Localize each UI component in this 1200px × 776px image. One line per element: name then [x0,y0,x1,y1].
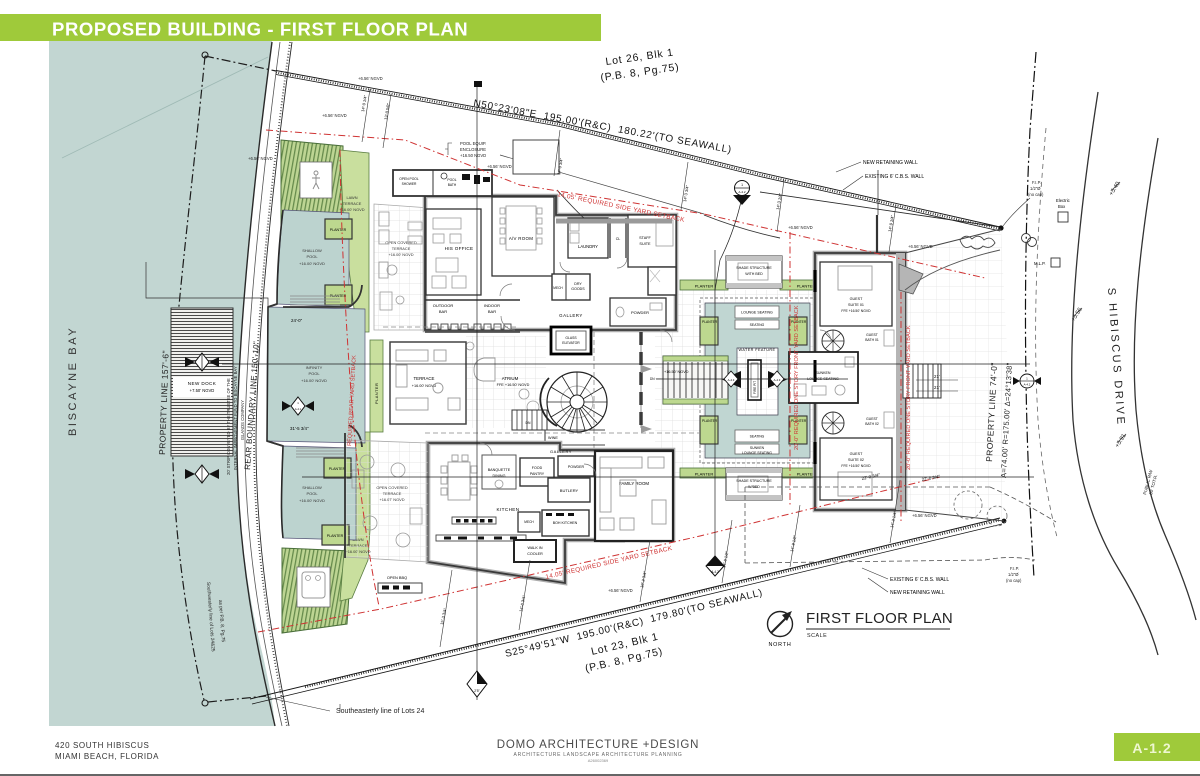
svg-text:+16.00' NGVD: +16.00' NGVD [299,498,325,503]
svg-text:+6.56' NGVD: +6.56' NGVD [608,588,633,593]
svg-text:PANTRY: PANTRY [530,472,545,476]
svg-text:LAWN: LAWN [346,195,357,200]
svg-text:+6.56' NGVD: +6.56' NGVD [912,513,937,518]
svg-text:BANQUETTE: BANQUETTE [488,468,511,472]
svg-text:POWDER: POWDER [631,310,649,315]
svg-text:420 SOUTH HIBISCUS: 420 SOUTH HIBISCUS [55,741,149,750]
svg-text:A-4.1: A-4.1 [295,407,302,411]
svg-text:BATH 02: BATH 02 [865,422,879,426]
svg-text:LOUNGE SEATING: LOUNGE SEATING [741,311,773,315]
svg-text:PLANTER: PLANTER [327,534,344,538]
svg-text:31'-5 3/4": 31'-5 3/4" [290,426,309,431]
svg-text:ELEVATOR: ELEVATOR [562,341,580,345]
svg-text:GUEST: GUEST [850,297,863,301]
svg-text:FFE +16.50' NGVD: FFE +16.50' NGVD [497,383,530,387]
svg-text:HIS OFFICE: HIS OFFICE [445,246,474,251]
svg-text:POWDER: POWDER [568,465,585,469]
svg-text:POOL: POOL [306,491,318,496]
svg-text:WALK IN: WALK IN [527,546,542,550]
svg-text:+6.56' NGVD: +6.56' NGVD [788,225,813,230]
svg-text:FIRST FLOOR PLAN: FIRST FLOOR PLAN [806,610,953,627]
svg-text:CL: CL [616,237,621,241]
svg-text:+16.00' NGVD: +16.00' NGVD [388,252,413,257]
svg-text:ATRIUM: ATRIUM [502,376,519,381]
svg-text:SUNKEN: SUNKEN [816,371,831,375]
svg-text:GALLERY: GALLERY [559,313,583,318]
svg-text:EXISTING 6' C.B.S. WALL: EXISTING 6' C.B.S. WALL [865,174,924,180]
svg-text:POOL: POOL [447,178,456,182]
svg-text:PLANTER: PLANTER [695,284,714,289]
svg-text:WATER FEATURE: WATER FEATURE [739,348,776,352]
svg-text:ISLANDS COMPANY: ISLANDS COMPANY [240,400,245,440]
svg-text:NEW RETAINING WALL: NEW RETAINING WALL [890,590,945,596]
svg-text:2'5": 2'5" [474,689,480,693]
svg-text:SHADE STRUCTURE: SHADE STRUCTURE [736,266,772,270]
svg-text:POOL: POOL [306,254,318,259]
svg-text:A-1.2: A-1.2 [1132,740,1171,756]
svg-text:MECH: MECH [553,286,563,290]
svg-text:FFE +16.50' NGVD: FFE +16.50' NGVD [841,309,871,313]
svg-text:20' STRIP CONVEYED BY THE TRUS: 20' STRIP CONVEYED BY THE TRUSTEE OF THE [226,378,231,475]
svg-text:NEW RETAINING WALL: NEW RETAINING WALL [863,160,918,166]
svg-text:+16.07' NGVD: +16.07' NGVD [379,497,404,502]
svg-text:PLANTER: PLANTER [797,284,816,289]
svg-text:+16.00' NGVD: +16.00' NGVD [299,261,325,266]
svg-text:MIAMI BEACH, FLORIDA: MIAMI BEACH, FLORIDA [55,752,159,761]
svg-text:BISCAYNE BAY: BISCAYNE BAY [67,326,79,436]
svg-text:PLANTER: PLANTER [330,228,347,232]
svg-text:GUEST: GUEST [866,417,878,421]
svg-text:SHADE STRUCTURE: SHADE STRUCTURE [736,479,772,483]
svg-text:GOODS: GOODS [571,287,585,291]
svg-text:GLASS: GLASS [565,336,577,340]
svg-text:PLANTER: PLANTER [695,472,714,477]
svg-text:+16.00' NGVD: +16.00' NGVD [339,207,364,212]
svg-text:+16.00' NGVD: +16.00' NGVD [301,378,327,383]
svg-text:BATH: BATH [448,183,457,187]
svg-text:20'-0" REQUIRED ONE STORY FRON: 20'-0" REQUIRED ONE STORY FRONT YARD SET… [794,305,800,450]
svg-text:M.L.P.: M.L.P. [1034,261,1046,266]
svg-text:SHOWER: SHOWER [402,182,417,186]
svg-text:TERRACE: TERRACE [383,491,402,496]
svg-text:(no cap): (no cap) [1006,578,1022,583]
svg-text:(no cap): (no cap) [1028,192,1044,197]
svg-text:POOL EQUIP.: POOL EQUIP. [460,141,486,146]
svg-text:PLANTER: PLANTER [702,419,718,423]
svg-text:PLANTER: PLANTER [702,320,718,324]
svg-text:MECH: MECH [524,520,534,524]
svg-text:NORTH: NORTH [768,642,791,648]
svg-text:SUITE: SUITE [639,242,651,246]
svg-text:Electric: Electric [1056,198,1070,203]
svg-text:+6.56' NGVD: +6.56' NGVD [248,156,273,161]
svg-text:A26002369: A26002369 [588,758,609,763]
svg-text:A-4.2: A-4.2 [711,570,719,574]
svg-text:BATH 01: BATH 01 [865,338,879,342]
svg-text:A-4.2: A-4.2 [738,190,746,194]
svg-text:A-4.3: A-4.3 [728,378,735,382]
svg-text:ENCLOSURE: ENCLOSURE [460,147,486,152]
svg-text:BAR: BAR [488,309,496,314]
svg-text:INTERNAL IMPROVEMENT FUND TO B: INTERNAL IMPROVEMENT FUND TO BISCAYNE BA… [233,366,238,470]
svg-text:F.I.P.: F.I.P. [1032,180,1041,185]
svg-text:SHALLOW: SHALLOW [302,485,322,490]
svg-text:DN: DN [526,421,531,425]
svg-text:FOOD: FOOD [532,466,543,470]
svg-text:WINE: WINE [548,436,558,440]
svg-text:BOH KITCHEN: BOH KITCHEN [553,521,578,525]
svg-text:SEATING: SEATING [750,323,765,327]
svg-text:A/V ROOM: A/V ROOM [509,236,533,241]
svg-text:PLANTER: PLANTER [797,472,816,477]
svg-text:TERRACE: TERRACE [343,201,362,206]
svg-text:WITH BED: WITH BED [745,272,763,276]
svg-text:+7.50' NGVD: +7.50' NGVD [190,388,215,393]
svg-text:GALLERY: GALLERY [550,449,572,454]
svg-text:DOMO ARCHITECTURE +DESIGN: DOMO ARCHITECTURE +DESIGN [497,739,699,751]
svg-text:TERRACE: TERRACE [414,376,435,381]
svg-text:+6.56' NGVD: +6.56' NGVD [358,76,383,81]
svg-text:1: 1 [741,183,743,187]
svg-text:GUEST: GUEST [866,333,878,337]
svg-text:STAFF: STAFF [639,236,651,240]
svg-text:LAUNDRY: LAUNDRY [578,244,598,249]
svg-text:PLANTER: PLANTER [329,467,346,471]
svg-text:1/2"Ø: 1/2"Ø [1008,572,1019,577]
svg-text:LOUNGE SEATING: LOUNGE SEATING [742,451,772,455]
svg-text:SUNKEN: SUNKEN [750,446,765,450]
svg-text:21': 21' [934,385,940,390]
svg-text:+6.56' NGVD: +6.56' NGVD [322,113,347,118]
svg-text:A-4.3: A-4.3 [774,378,781,382]
svg-text:FIRE PIT: FIRE PIT [753,381,757,394]
svg-text:21': 21' [934,374,940,379]
svg-text:POOL: POOL [308,371,320,376]
svg-text:+6.56' NGVD: +6.56' NGVD [487,164,512,169]
svg-text:BUTLERY: BUTLERY [560,488,579,493]
svg-text:INDOOR: INDOOR [484,303,500,308]
svg-text:A-4.2: A-4.2 [1024,383,1031,387]
svg-text:PROPOSED BUILDING - FIRST FLOO: PROPOSED BUILDING - FIRST FLOOR PLAN [52,19,468,40]
svg-text:Southeasterly line of Lots 24: Southeasterly line of Lots 24 [336,708,424,715]
svg-text:F.I.P.: F.I.P. [1010,566,1019,571]
svg-text:EXISTING 6' C.B.S. WALL: EXISTING 6' C.B.S. WALL [890,577,949,583]
svg-text:20'-0" REQUIRED ONE STORY FRON: 20'-0" REQUIRED ONE STORY FRONT YARD SET… [906,325,912,470]
svg-text:DRY: DRY [574,282,582,286]
svg-text:SUITE 02: SUITE 02 [848,458,864,462]
svg-text:OPEN COVERED: OPEN COVERED [376,485,408,490]
svg-text:OPEN BBQ: OPEN BBQ [387,575,407,580]
svg-text:KITCHEN: KITCHEN [497,507,520,512]
svg-text:BAR: BAR [439,309,447,314]
svg-text:TERRACE: TERRACE [392,246,411,251]
svg-text:SEATING: SEATING [750,435,765,439]
svg-text:1/2"Ø: 1/2"Ø [1030,186,1041,191]
svg-text:Box: Box [1058,204,1066,209]
svg-text:FFE +16.50' NGVD: FFE +16.50' NGVD [841,464,871,468]
svg-text:SUITE 01: SUITE 01 [848,303,864,307]
svg-text:GUEST: GUEST [850,452,863,456]
svg-text:NEW DOCK: NEW DOCK [188,381,217,386]
svg-text:+16.50 NGVD: +16.50 NGVD [460,153,486,158]
svg-text:DN: DN [650,377,655,381]
svg-text:COOLER: COOLER [527,552,543,556]
svg-text:SHALLOW: SHALLOW [302,248,322,253]
svg-text:24'-0": 24'-0" [291,318,303,323]
svg-text:+16.50' NGVD: +16.50' NGVD [664,370,689,374]
svg-text:OPEN POOL: OPEN POOL [399,177,419,181]
svg-text:FAMILY ROOM: FAMILY ROOM [619,481,649,486]
svg-text:INFINITY: INFINITY [306,365,323,370]
svg-text:DINING: DINING [493,474,506,478]
svg-text:PLANTER: PLANTER [374,383,379,404]
svg-text:SCALE: SCALE [807,633,827,639]
svg-text:OUTDOOR: OUTDOOR [433,303,454,308]
svg-text:+6.56' NGVD: +6.56' NGVD [908,244,933,249]
